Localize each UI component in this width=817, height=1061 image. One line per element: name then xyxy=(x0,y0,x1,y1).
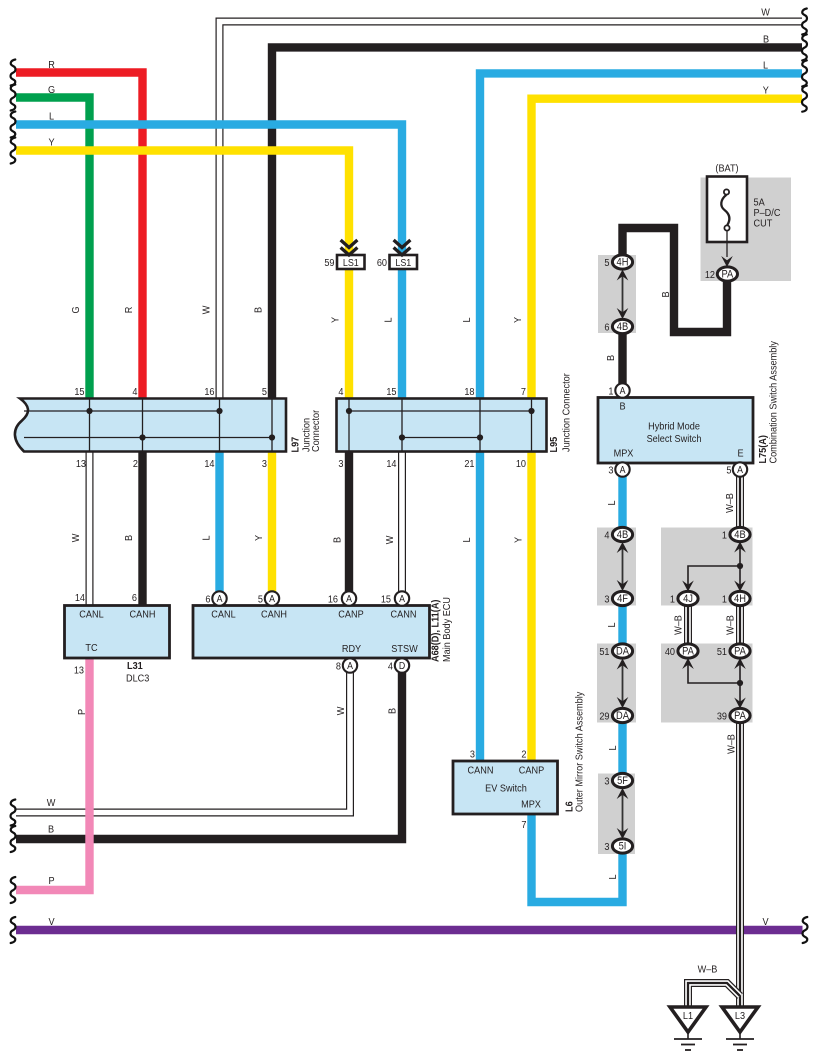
svg-text:39: 39 xyxy=(717,711,727,723)
svg-text:LS1: LS1 xyxy=(395,258,411,270)
svg-text:3: 3 xyxy=(470,749,476,761)
svg-text:5: 5 xyxy=(604,258,610,270)
svg-text:W–B: W–B xyxy=(726,734,738,754)
svg-text:5F: 5F xyxy=(617,776,628,788)
svg-text:59: 59 xyxy=(324,258,334,270)
svg-text:4J: 4J xyxy=(683,594,693,606)
svg-text:B: B xyxy=(661,291,673,298)
svg-text:3: 3 xyxy=(604,842,610,854)
svg-text:L: L xyxy=(49,111,55,123)
svg-text:W–B: W–B xyxy=(725,493,737,513)
svg-text:Main Body ECU: Main Body ECU xyxy=(442,597,454,662)
svg-text:V: V xyxy=(48,917,55,929)
svg-text:8: 8 xyxy=(336,661,342,673)
svg-text:4B: 4B xyxy=(734,530,746,542)
svg-text:Hybrid Mode: Hybrid Mode xyxy=(648,421,700,433)
svg-text:MPX: MPX xyxy=(614,448,634,460)
svg-text:16: 16 xyxy=(204,387,215,399)
svg-text:Y: Y xyxy=(763,85,770,97)
svg-text:3: 3 xyxy=(608,465,614,477)
svg-text:L3: L3 xyxy=(735,1011,746,1023)
svg-text:Combination Switch Assembly: Combination Switch Assembly xyxy=(768,341,780,464)
svg-text:EV Switch: EV Switch xyxy=(485,783,527,795)
svg-text:PA: PA xyxy=(734,646,746,658)
svg-text:L: L xyxy=(201,535,213,541)
svg-text:4F: 4F xyxy=(617,594,628,606)
svg-text:R: R xyxy=(48,60,55,72)
svg-text:4B: 4B xyxy=(617,530,629,542)
svg-text:21: 21 xyxy=(464,459,474,471)
svg-text:L31: L31 xyxy=(127,661,143,673)
svg-text:Y: Y xyxy=(48,137,55,149)
svg-text:L: L xyxy=(607,500,619,506)
svg-text:CUT: CUT xyxy=(754,218,773,230)
svg-text:L: L xyxy=(607,622,619,628)
svg-text:14: 14 xyxy=(386,459,397,471)
svg-text:A: A xyxy=(347,659,354,671)
svg-text:A: A xyxy=(737,463,744,475)
svg-text:P: P xyxy=(48,876,55,888)
svg-text:W: W xyxy=(385,535,397,544)
svg-text:4: 4 xyxy=(338,387,344,399)
svg-text:4H: 4H xyxy=(734,594,746,606)
svg-text:4: 4 xyxy=(132,387,138,399)
svg-text:DA: DA xyxy=(616,711,629,723)
svg-text:15: 15 xyxy=(381,594,392,606)
svg-text:2: 2 xyxy=(133,459,138,471)
svg-text:L1: L1 xyxy=(683,1011,693,1023)
svg-text:4H: 4H xyxy=(617,257,629,269)
svg-text:V: V xyxy=(762,917,769,929)
svg-text:L97: L97 xyxy=(290,436,302,452)
svg-text:13: 13 xyxy=(74,665,85,677)
svg-text:L95: L95 xyxy=(549,436,561,452)
svg-text:29: 29 xyxy=(599,711,609,723)
svg-text:B: B xyxy=(48,824,55,836)
svg-text:DLC3: DLC3 xyxy=(126,673,150,685)
svg-text:5: 5 xyxy=(258,594,264,606)
svg-text:G: G xyxy=(48,85,55,97)
svg-text:W: W xyxy=(201,305,213,314)
svg-text:Y: Y xyxy=(513,537,525,544)
svg-text:W: W xyxy=(71,533,83,542)
svg-text:1: 1 xyxy=(608,386,613,398)
svg-text:PA: PA xyxy=(734,711,746,723)
svg-text:2: 2 xyxy=(521,749,526,761)
svg-text:Y: Y xyxy=(513,317,525,324)
svg-text:G: G xyxy=(71,306,83,313)
svg-text:51: 51 xyxy=(599,647,609,659)
svg-text:40: 40 xyxy=(665,647,676,659)
svg-text:A: A xyxy=(399,592,406,604)
svg-text:PA: PA xyxy=(722,269,734,281)
svg-text:6: 6 xyxy=(132,593,138,605)
svg-text:D: D xyxy=(399,659,406,671)
svg-text:CANL: CANL xyxy=(79,609,104,621)
svg-text:B: B xyxy=(124,535,136,542)
svg-text:Y: Y xyxy=(330,317,342,324)
svg-text:6: 6 xyxy=(604,322,610,334)
svg-text:CANN: CANN xyxy=(468,765,494,777)
svg-text:L: L xyxy=(462,537,474,543)
svg-text:7: 7 xyxy=(521,387,526,399)
svg-text:51: 51 xyxy=(717,647,727,659)
svg-text:A: A xyxy=(269,592,276,604)
svg-text:RDY: RDY xyxy=(342,644,362,656)
svg-text:Connector: Connector xyxy=(311,409,323,452)
svg-text:14: 14 xyxy=(204,459,215,471)
svg-text:Outer Mirror Switch Assembly: Outer Mirror Switch Assembly xyxy=(574,692,586,812)
svg-text:A: A xyxy=(346,592,353,604)
svg-text:P: P xyxy=(77,709,89,716)
svg-text:18: 18 xyxy=(464,387,475,399)
svg-text:Junction Connector: Junction Connector xyxy=(561,373,573,452)
svg-text:5: 5 xyxy=(262,387,268,399)
svg-text:4: 4 xyxy=(388,661,394,673)
svg-text:W–B: W–B xyxy=(725,615,737,635)
svg-text:LS1: LS1 xyxy=(343,258,359,270)
svg-text:DA: DA xyxy=(616,646,629,658)
svg-text:TC: TC xyxy=(85,643,97,655)
svg-text:W: W xyxy=(336,706,348,715)
svg-text:1: 1 xyxy=(722,594,727,606)
svg-text:4B: 4B xyxy=(617,322,629,334)
svg-text:L: L xyxy=(383,317,395,323)
svg-text:60: 60 xyxy=(377,258,388,270)
svg-text:A: A xyxy=(217,592,224,604)
svg-text:(BAT): (BAT) xyxy=(715,163,738,175)
svg-text:W–B: W–B xyxy=(673,615,685,635)
svg-text:E: E xyxy=(737,448,744,460)
svg-text:3: 3 xyxy=(262,459,268,471)
svg-text:5I: 5I xyxy=(619,841,627,853)
svg-text:B: B xyxy=(332,537,344,544)
svg-text:Y: Y xyxy=(254,535,266,542)
svg-text:W: W xyxy=(761,7,770,19)
svg-text:CANL: CANL xyxy=(211,609,236,621)
svg-text:A: A xyxy=(620,463,627,475)
svg-text:A68(D), L11(A): A68(D), L11(A) xyxy=(430,600,442,662)
svg-text:12: 12 xyxy=(705,270,715,282)
svg-text:6: 6 xyxy=(205,594,211,606)
svg-text:CANH: CANH xyxy=(261,609,287,621)
svg-text:MPX: MPX xyxy=(521,799,541,811)
svg-text:1: 1 xyxy=(722,530,727,542)
svg-text:3: 3 xyxy=(604,594,610,606)
svg-text:15: 15 xyxy=(74,387,85,399)
svg-text:1: 1 xyxy=(670,594,675,606)
svg-text:R: R xyxy=(124,307,136,314)
svg-text:W: W xyxy=(47,798,56,810)
svg-text:4: 4 xyxy=(604,530,610,542)
svg-text:B: B xyxy=(606,355,618,362)
svg-text:W–B: W–B xyxy=(698,964,718,976)
svg-text:16: 16 xyxy=(328,594,339,606)
svg-text:A: A xyxy=(620,384,627,396)
svg-text:CANN: CANN xyxy=(391,609,417,621)
svg-text:PA: PA xyxy=(682,646,694,658)
svg-text:3: 3 xyxy=(604,776,610,788)
svg-text:B: B xyxy=(253,307,265,314)
svg-text:L: L xyxy=(462,317,474,323)
svg-text:B: B xyxy=(763,34,770,46)
svg-text:3: 3 xyxy=(338,459,344,471)
svg-text:5: 5 xyxy=(726,465,732,477)
svg-text:L: L xyxy=(763,60,769,72)
svg-text:Select Switch: Select Switch xyxy=(647,434,702,446)
svg-text:10: 10 xyxy=(516,459,527,471)
svg-text:14: 14 xyxy=(75,593,86,605)
svg-text:L: L xyxy=(608,874,620,880)
svg-text:CANH: CANH xyxy=(130,609,156,621)
svg-text:CANP: CANP xyxy=(519,765,545,777)
svg-text:13: 13 xyxy=(76,459,87,471)
svg-text:7: 7 xyxy=(521,820,526,832)
svg-text:STSW: STSW xyxy=(391,644,418,656)
svg-text:15: 15 xyxy=(386,387,397,399)
svg-text:B: B xyxy=(387,708,399,715)
svg-text:CANP: CANP xyxy=(338,609,364,621)
svg-text:L: L xyxy=(608,745,620,751)
svg-text:B: B xyxy=(619,401,626,413)
